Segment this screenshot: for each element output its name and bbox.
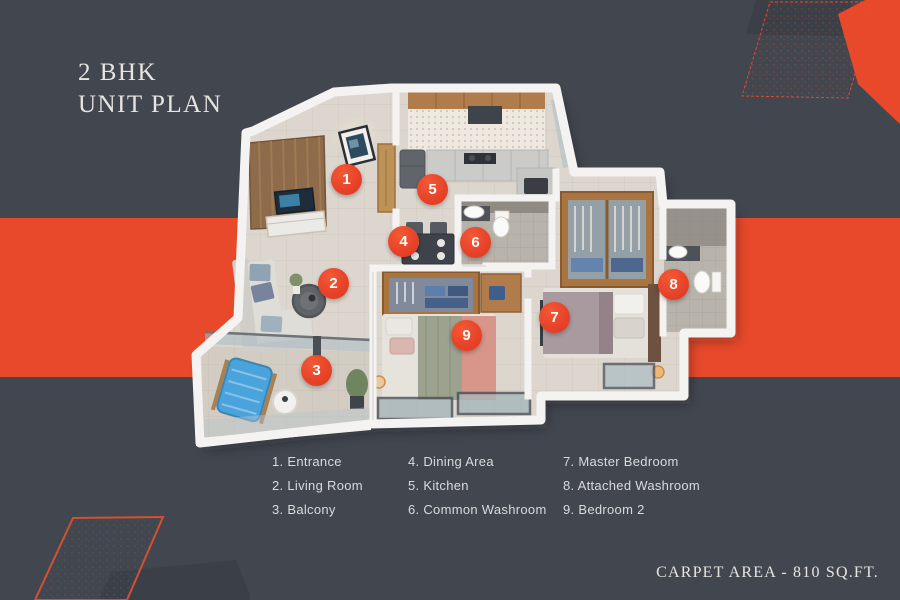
legend-item: 1. Entrance [272, 454, 408, 469]
plant [290, 274, 303, 287]
legend-item: 4. Dining Area [408, 454, 563, 469]
room-legend: 1. Entrance 2. Living Room 3. Balcony 4.… [272, 454, 723, 526]
washbasin [669, 246, 687, 258]
marker-number: 4 [399, 233, 407, 250]
marker-kitchen: 5 [417, 174, 448, 205]
washbasin [464, 206, 484, 218]
plant [346, 369, 368, 399]
legend-item: 2. Living Room [272, 478, 408, 493]
kitchen-hood [468, 106, 502, 124]
title-line1: 2 BHK [78, 57, 222, 89]
marker-number: 8 [669, 276, 677, 293]
marker-number: 7 [550, 309, 558, 326]
legend-item: 9. Bedroom 2 [563, 502, 723, 517]
title-line2: UNIT PLAN [78, 89, 222, 121]
carpet-area-text: CARPET AREA - 810 SQ.FT. [656, 564, 879, 582]
master-window [604, 364, 654, 388]
marker-living-room: 2 [318, 268, 349, 299]
master-headboard [648, 284, 661, 362]
marker-number: 5 [428, 181, 436, 198]
bedroom2-window [378, 398, 452, 419]
marker-number: 3 [312, 362, 320, 379]
page-title: 2 BHK UNIT PLAN [78, 57, 222, 121]
marker-master-bedroom: 7 [539, 302, 570, 333]
marker-number: 2 [329, 275, 337, 292]
marker-common-washroom: 6 [460, 227, 491, 258]
marker-number: 6 [471, 234, 479, 251]
legend-item: 8. Attached Washroom [563, 478, 723, 493]
unit-plan-poster: 1 2 3 4 5 6 7 8 9 2 BHK UNIT PLAN 1. Ent… [0, 0, 900, 600]
toilet [493, 217, 509, 237]
desk-chair [489, 286, 505, 300]
legend-column-2: 4. Dining Area 5. Kitchen 6. Common Wash… [408, 454, 563, 526]
marker-bedroom2: 9 [451, 320, 482, 351]
legend-item: 3. Balcony [272, 502, 408, 517]
marker-balcony: 3 [301, 355, 332, 386]
legend-item: 7. Master Bedroom [563, 454, 723, 469]
toilet [694, 271, 710, 293]
marker-attached-washroom: 8 [658, 269, 689, 300]
kitchen-sink [524, 178, 548, 194]
marker-dining-area: 4 [388, 226, 419, 257]
legend-item: 6. Common Washroom [408, 502, 563, 517]
door-frame [313, 336, 321, 356]
bedroom2-window [458, 393, 530, 414]
marker-number: 1 [342, 171, 350, 188]
legend-column-1: 1. Entrance 2. Living Room 3. Balcony [272, 454, 408, 526]
marker-number: 9 [462, 327, 470, 344]
legend-item: 5. Kitchen [408, 478, 563, 493]
cooktop [464, 153, 496, 164]
marker-entrance: 1 [331, 164, 362, 195]
legend-column-3: 7. Master Bedroom 8. Attached Washroom 9… [563, 454, 723, 526]
